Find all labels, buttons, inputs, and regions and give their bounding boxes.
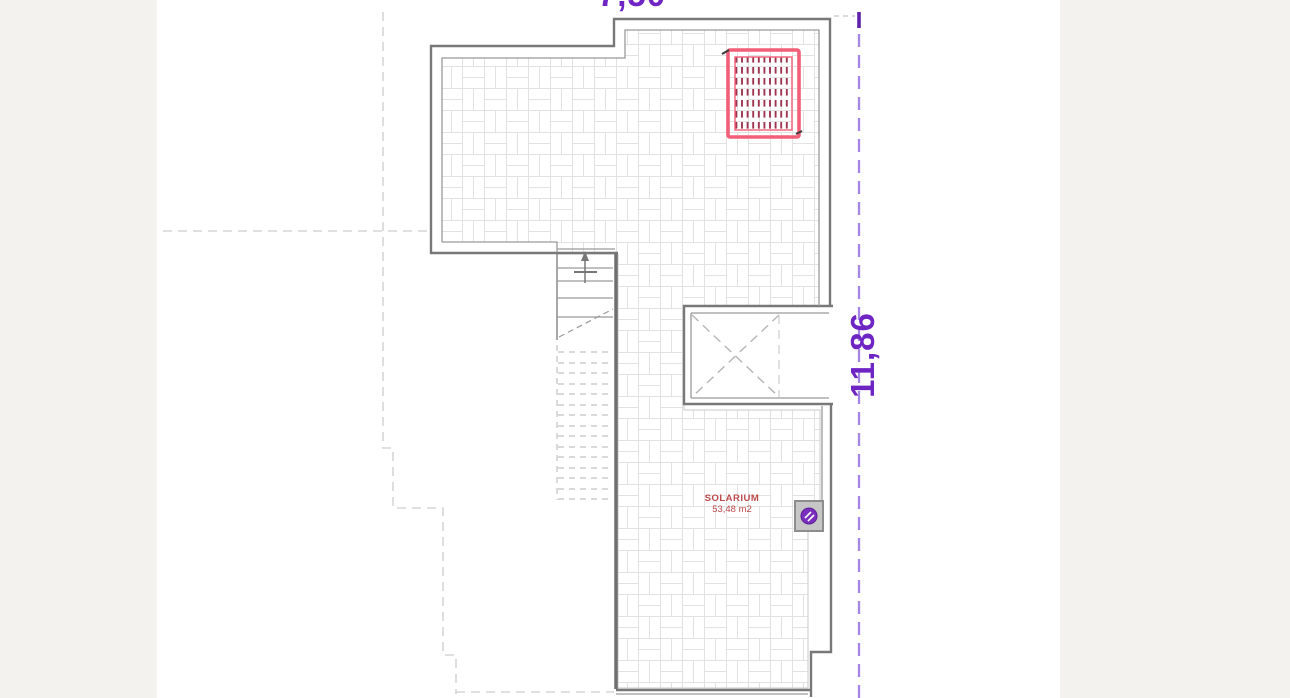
stairs — [557, 251, 613, 500]
dimension-label-top: 7,50 — [592, 0, 672, 11]
drain-icon — [800, 507, 818, 525]
roof-fixture — [794, 500, 824, 532]
dimension-label-right: 11,86 — [846, 305, 880, 405]
void-notch — [685, 307, 830, 402]
stairs-hidden-steps — [558, 352, 613, 499]
room-area-label: 53,48 m2 — [697, 504, 767, 515]
screenshot-stage: 7,50 11,86 SOLARIUM 53,48 m2 — [0, 0, 1290, 698]
floor-plan-svg — [0, 0, 1290, 698]
stairs-cut-line — [559, 309, 613, 337]
room-label: SOLARIUM 53,48 m2 — [697, 493, 767, 515]
stairs-up-arrow-icon — [581, 251, 589, 283]
room-name: SOLARIUM — [697, 493, 767, 504]
